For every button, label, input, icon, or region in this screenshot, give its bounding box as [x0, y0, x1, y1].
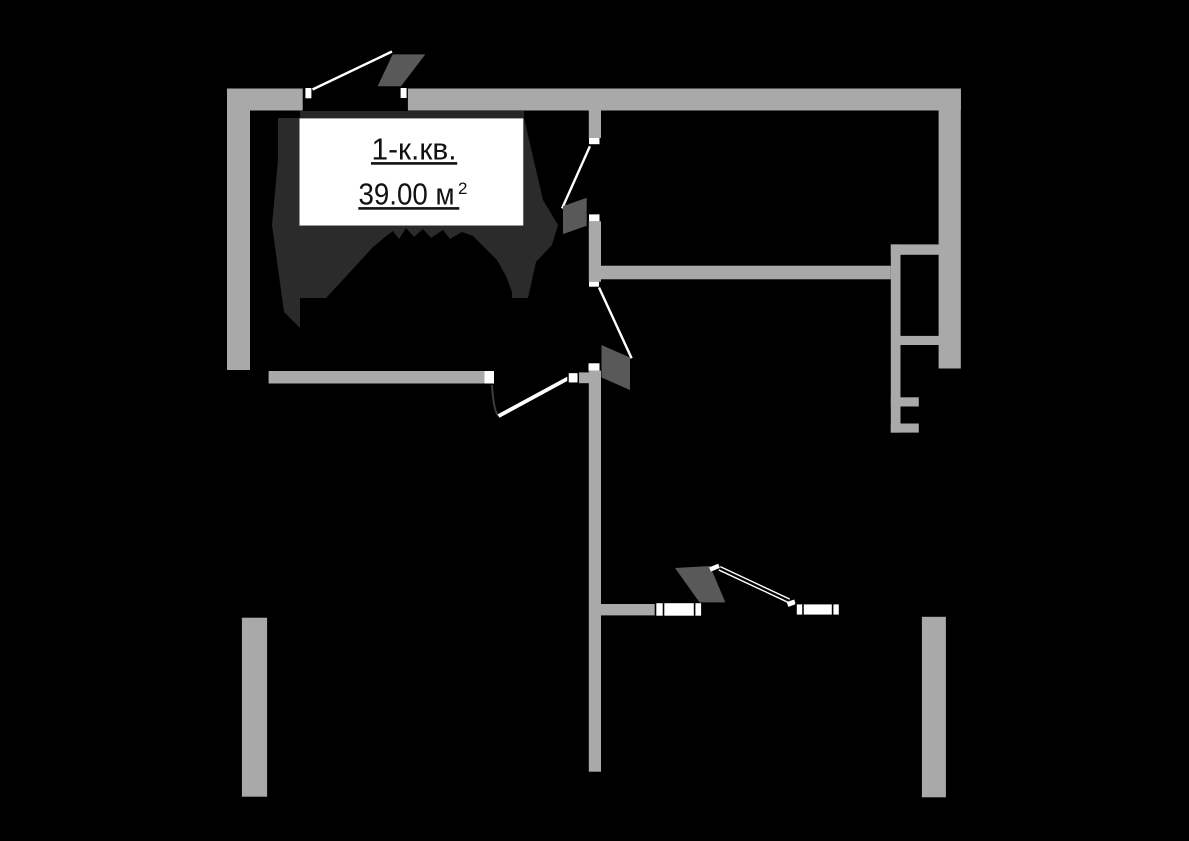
svg-text:39.00 м: 39.00 м — [359, 177, 455, 212]
svg-text:1-к.кв.: 1-к.кв. — [372, 131, 457, 166]
svg-text:2: 2 — [458, 179, 467, 198]
